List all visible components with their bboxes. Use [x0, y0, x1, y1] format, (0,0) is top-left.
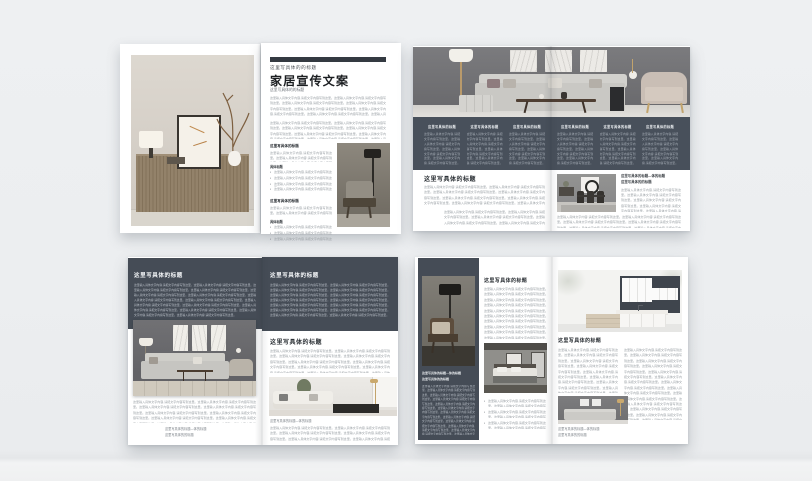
sideboard-photo: [131, 55, 254, 226]
band-column-heading: 这里写具体的标题: [642, 124, 678, 129]
mockup-backdrop: 这里写具体的的标题 家居宣传文案 这里写具体的的标题 这里输入具体文字内容,请把…: [0, 0, 812, 481]
band-column-text: 这里输入具体文字内容,请把文字内容写到这里。这里输入具体文字内容,请把文字内容写…: [467, 132, 503, 166]
coffee-table-top: [516, 99, 596, 102]
lower-right-heading-2: 这里写具体的的标题: [621, 180, 681, 186]
right-band-paragraph: 这里输入具体文字内容,请把文字内容写到这里。这里输入具体文字内容,请把文字内容写…: [270, 283, 390, 321]
floor-lamp-shade: [139, 338, 153, 346]
floor-lamp-shade: [449, 49, 473, 62]
wall-art: [580, 50, 607, 72]
throw-pillow: [309, 394, 318, 401]
cover-title: 家居宣传文案: [270, 72, 349, 89]
wall-art: [211, 325, 226, 351]
armchair: [229, 359, 253, 376]
right-caption-2: 这里写具体的的标题: [558, 433, 587, 438]
lower-right-paragraph: 这里输入具体文字内容,请把文字内容写到这里。这里输入具体文字内容,请把文字内容写…: [621, 188, 681, 212]
wall-art: [173, 325, 188, 351]
column-band: 这里写具体的标题 这里输入具体文字内容,请把文字内容写到这里。这里输入具体文字内…: [413, 117, 690, 170]
section-text: 这里输入具体文字内容,请把文字内容写到这里。这里输入具体文字内容,请把文字内容写…: [270, 206, 332, 217]
sidebar-heading-1: 这里写具体的标题—体的标题: [422, 371, 461, 376]
cover-right-page: 这里写具体的的标题 家居宣传文案 这里写具体的的标题 这里输入具体文字内容,请把…: [261, 43, 401, 234]
dark-side-panel: [610, 87, 624, 111]
branch-decor: [215, 91, 251, 155]
wall-art: [580, 399, 589, 406]
ceiling: [484, 343, 547, 350]
dining-table: [577, 195, 605, 197]
section-heading: 这里写具体的标题: [270, 199, 332, 204]
armchair-photo: [337, 143, 390, 227]
armchair-cushion: [432, 322, 450, 334]
left-caption-2: 这里写具体的的标题: [165, 433, 194, 438]
throw-pillow: [548, 78, 562, 88]
spread-top-left: 这里写具体的的标题 家居宣传文案 这里写具体的的标题 这里输入具体文字内容,请把…: [120, 43, 401, 234]
bullet-item: 这里输入具体文字内容,请把文字内容写到这里。这里输入具体文字内容,请把文字内容写…: [484, 421, 548, 429]
right-header-band: 这里写具体的标题 这里输入具体文字内容,请把文字内容写到这里。这里输入具体文字内…: [262, 257, 398, 331]
left-band-paragraph: 这里输入具体文字内容,请把文字内容写到这里。这里输入具体文字内容,请把文字内容写…: [134, 283, 256, 317]
cover-eyebrow: 这里写具体的的标题: [270, 65, 317, 71]
dining-chair: [577, 191, 584, 203]
right-lower-paragraph: 这里输入具体文字内容,请把文字内容写到这里。这里输入具体文字内容,请把文字内容写…: [270, 426, 390, 441]
band-column: 这里写具体的标题 这里输入具体文字内容,请把文字内容写到这里。这里输入具体文字内…: [642, 124, 678, 168]
lower-left-paragraph: 这里输入具体文字内容,请把文字内容写到这里。这里输入具体文字内容,请把文字内容写…: [424, 185, 545, 207]
wall-art: [545, 50, 572, 72]
sidebar-heading-2: 这里写具体的的标题: [422, 377, 449, 382]
gold-floor-lamp: [375, 380, 376, 404]
floor: [422, 346, 475, 366]
middle-paragraph: 这里输入具体文字内容,请把文字内容写到这里。这里输入具体文字内容,请把文字内容写…: [484, 287, 548, 339]
right-body-paragraph: 这里输入具体文字内容,请把文字内容写到这里。这里输入具体文字内容,请把文字内容写…: [270, 349, 390, 373]
table-decor: [561, 92, 567, 99]
spread-top-right: 这里写具体的标题 这里输入具体文字内容,请把文字内容写到这里。这里输入具体文字内…: [413, 46, 690, 231]
floor-lamp-shade: [364, 149, 381, 158]
armchair-cushion: [645, 87, 683, 101]
section-subheading: 具体标题: [270, 219, 332, 224]
table-lamp-stem: [149, 148, 153, 158]
band-column-heading: 这里写具体的标题: [424, 124, 460, 129]
coffee-table-block: [333, 404, 379, 413]
band-column-text: 这里输入具体文字内容,请把文字内容写到这里。这里输入具体文字内容,请把文字内容写…: [557, 132, 593, 166]
bullet-item: 这里输入具体文字内容,请把文字内容写到这里。: [270, 170, 332, 175]
spread-bottom-right: 这里写具体的标题—体的标题 这里写具体的的标题 这里输入具体文字内容,请把文字内…: [415, 257, 688, 444]
right-caption-1: 这里写具体的标题—体的标题: [558, 427, 599, 432]
table-lamp-shade: [139, 131, 163, 148]
band-column-heading: 这里写具体的标题: [557, 124, 593, 129]
floor: [133, 381, 256, 396]
left-lower-paragraph: 这里输入具体文字内容,请把文字内容写到这里。这里输入具体文字内容,请把文字内容写…: [133, 400, 256, 423]
upper-cabinets: [652, 288, 678, 300]
floor-lamp-shade: [439, 284, 461, 295]
middle-column: 这里写具体的标题 这里输入具体文字内容,请把文字内容写到这里。这里输入具体文字内…: [484, 277, 548, 432]
bright-livingroom-photo: [269, 377, 397, 416]
armchair-photo-dark: [422, 276, 475, 366]
throw-pillow: [589, 79, 602, 88]
right-column-2: 这里输入具体文字内容,请把文字内容写到这里。这里输入具体文字内容,请把文字内容写…: [624, 348, 682, 420]
bullet-item: 这里输入具体文字内容,请把文字内容写到这里。: [270, 225, 332, 230]
island-base: [618, 314, 666, 327]
spread-bottom-left: 这里写具体的标题 这里输入具体文字内容,请把文字内容写到这里。这里输入具体文字内…: [128, 257, 398, 445]
sidebar-panel: 这里写具体的标题—体的标题 这里写具体的的标题 这里输入具体文字内容,请把文字内…: [418, 258, 479, 440]
band-column-heading: 这里写具体的标题: [467, 124, 503, 129]
bullet-item: 这里输入具体文字内容,请把文字内容写到这里。: [270, 182, 332, 187]
pillow: [497, 367, 507, 372]
right-heading: 这里写具体的标题: [558, 337, 601, 344]
band-column-text: 这里输入具体文字内容,请把文字内容写到这里。这里输入具体文字内容,请把文字内容写…: [642, 132, 678, 166]
bullet-item: 这里输入具体文字内容,请把文字内容写到这里。: [270, 237, 332, 242]
ottoman: [459, 95, 493, 112]
section-text: 这里输入具体文字内容,请把文字内容写到这里。这里输入具体文字内容,请把文字内容写…: [270, 151, 332, 162]
lower-left-paragraph-2: 这里输入具体文字内容,请把文字内容写到这里。这里输入具体文字内容,请把文字内容写…: [444, 210, 545, 225]
title-rule: [270, 57, 386, 62]
armchair-seat: [428, 334, 458, 342]
band-column-heading: 这里写具体的标题: [509, 124, 545, 129]
wood-cabinet: [586, 314, 620, 328]
floor: [558, 420, 628, 424]
band-column-text: 这里输入具体文字内容,请把文字内容写到这里。这里输入具体文字内容,请把文字内容写…: [509, 132, 545, 166]
bullet-item: 这里输入具体文字内容,请把文字内容写到这里。: [270, 231, 332, 236]
band-column: 这里写具体的标题 这里输入具体文字内容,请把文字内容写到这里。这里输入具体文字内…: [600, 124, 636, 168]
left-header-band: 这里写具体的标题 这里输入具体文字内容,请把文字内容写到这里。这里输入具体文字内…: [128, 258, 262, 329]
sideboard: [559, 187, 574, 196]
upper-cabinets: [622, 278, 652, 302]
right-band-heading: 这里写具体的标题: [270, 271, 319, 279]
cover-subtitle: 这里写具体的的标题: [270, 88, 304, 93]
bedroom-photo: [484, 343, 547, 393]
bullet-item: 这里输入具体文字内容,请把文字内容写到这里。: [270, 187, 332, 192]
right-body-heading: 这里写具体的标题: [270, 337, 322, 346]
bullet-item: 这里输入具体文字内容,请把文字内容写到这里。这里输入具体文字内容,请把文字内容写…: [484, 410, 548, 418]
side-lamp: [236, 348, 241, 353]
throw-pillow: [193, 357, 202, 364]
band-column: 这里写具体的标题 这里输入具体文字内容,请把文字内容写到这里。这里输入具体文字内…: [467, 124, 503, 168]
band-column: 这里写具体的标题 这里输入具体文字内容,请把文字内容写到这里。这里输入具体文字内…: [557, 124, 593, 168]
band-column: 这里写具体的标题 这里输入具体文字内容,请把文字内容写到这里。这里输入具体文字内…: [424, 124, 460, 168]
middle-heading: 这里写具体的标题: [484, 277, 548, 284]
sofa-small-photo: [558, 396, 628, 424]
vase: [228, 151, 241, 166]
throw-pillow: [503, 79, 516, 88]
rug: [561, 205, 616, 212]
wall-art: [192, 325, 207, 351]
cover-sections-column: 这里写具体的标题 这里输入具体文字内容,请把文字内容写到这里。这里输入具体文字内…: [270, 144, 332, 243]
floor: [337, 214, 390, 227]
cover-left-page: [120, 44, 260, 233]
book-stack: [167, 157, 185, 164]
dining-photo: [557, 174, 616, 212]
wall-art: [510, 50, 537, 72]
band-column: 这里写具体的标题 这里输入具体文字内容,请把文字内容写到这里。这里输入具体文字内…: [509, 124, 545, 168]
bullet-item: 这里输入具体文字内容,请把文字内容写到这里。: [270, 176, 332, 181]
faucet: [638, 305, 643, 311]
floor: [484, 385, 547, 393]
left-band-heading: 这里写具体的标题: [134, 271, 183, 279]
band-column-text: 这里输入具体文字内容,请把文字内容写到这里。这里输入具体文字内容,请把文字内容写…: [600, 132, 636, 166]
tree-blur: [558, 270, 586, 296]
bed-blanket: [493, 376, 537, 383]
sidebar-paragraph: 这里输入具体文字内容,请把文字内容写到这里。这里输入具体文字内容,请把文字内容写…: [422, 385, 475, 435]
lower-right-text: 这里写具体的标题—体的标题 这里写具体的的标题 这里输入具体文字内容,请把文字内…: [621, 174, 681, 212]
throw-pillow: [279, 394, 288, 401]
livingroom-photo: [133, 320, 256, 396]
right-column-1: 这里输入具体文字内容,请把文字内容写到这里。这里输入具体文字内容,请把文字内容写…: [558, 348, 618, 393]
left-caption-1: 这里写具体的标题—体的标题: [165, 427, 206, 432]
dining-chair: [597, 191, 604, 203]
lower-right-bottom-paragraph: 这里输入具体文字内容,请把文字内容写到这里。这里输入具体文字内容,请把文字内容写…: [557, 215, 681, 228]
throw-pillow: [487, 79, 500, 88]
pillow: [511, 367, 521, 372]
plant: [563, 181, 569, 187]
wall-art: [592, 399, 601, 406]
sofa: [564, 409, 616, 420]
section-subheading: 具体标题: [270, 164, 332, 169]
band-column-heading: 这里写具体的标题: [600, 124, 636, 129]
right-photo-caption: 这里写具体的标题—体的标题: [270, 419, 311, 424]
kitchen-photo: [558, 270, 682, 332]
lower-left-heading: 这里写具体的标题: [424, 174, 476, 183]
section-heading: 这里写具体的标题: [270, 144, 332, 149]
throw-pillow: [149, 357, 158, 364]
cover-intro-paragraph: 这里输入具体文字内容,请把文字内容写到这里。这里输入具体文字内容,请把文字内容写…: [270, 96, 386, 118]
bullet-item: 这里输入具体文字内容,请把文字内容写到这里。这里输入具体文字内容,请把文字内容写…: [484, 399, 548, 407]
band-column-text: 这里输入具体文字内容,请把文字内容写到这里。这里输入具体文字内容,请把文字内容写…: [424, 132, 460, 166]
table-decor: [539, 94, 544, 99]
dining-chair: [587, 191, 594, 203]
cover-intro-paragraph-2: 这里输入具体文字内容,请把文字内容写到这里。这里输入具体文字内容,请把文字内容写…: [270, 121, 386, 139]
livingroom-wide-photo: [413, 47, 690, 117]
